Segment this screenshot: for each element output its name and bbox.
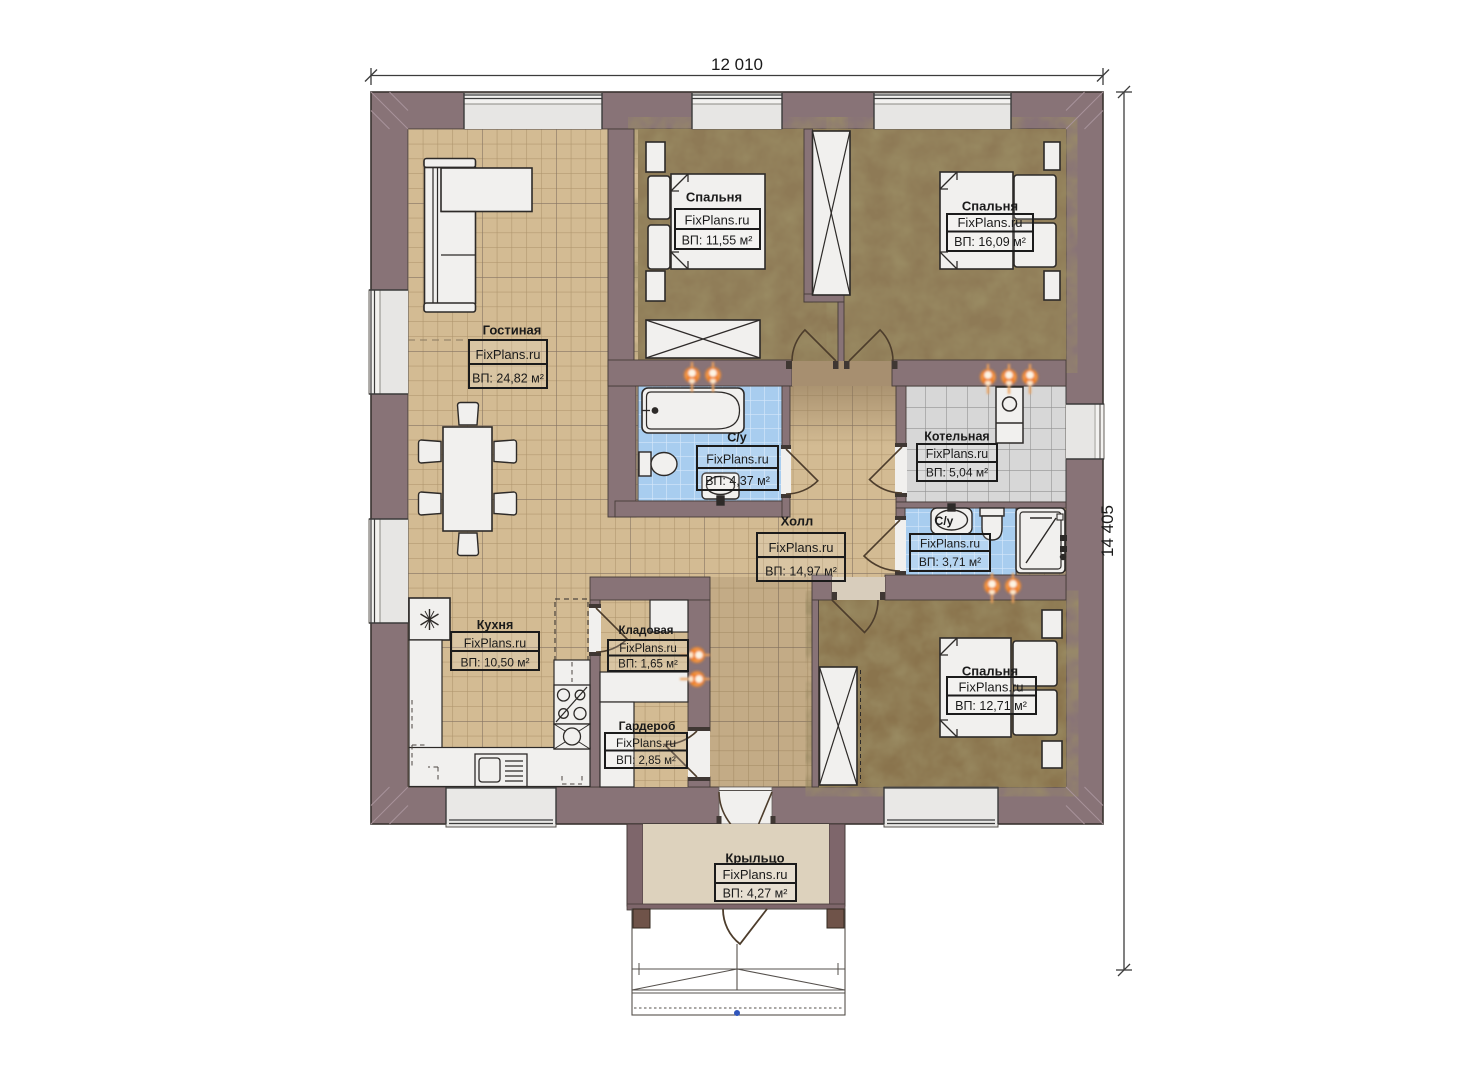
svg-text:FixPlans.ru: FixPlans.ru bbox=[920, 537, 980, 551]
svg-text:FixPlans.ru: FixPlans.ru bbox=[464, 637, 527, 651]
svg-text:ВП: 12,71 м²: ВП: 12,71 м² bbox=[955, 699, 1027, 713]
svg-text:ВП: 4,37 м²: ВП: 4,37 м² bbox=[705, 474, 770, 488]
svg-text:ВП: 2,85 м²: ВП: 2,85 м² bbox=[616, 755, 676, 767]
svg-text:С/у: С/у bbox=[935, 514, 954, 528]
svg-text:FixPlans.ru: FixPlans.ru bbox=[684, 213, 749, 228]
svg-text:Спальня: Спальня bbox=[686, 190, 742, 205]
svg-text:FixPlans.ru: FixPlans.ru bbox=[958, 680, 1023, 695]
svg-text:14 405: 14 405 bbox=[1098, 505, 1117, 557]
svg-text:FixPlans.ru: FixPlans.ru bbox=[475, 347, 540, 362]
svg-text:ВП: 24,82 м²: ВП: 24,82 м² bbox=[472, 372, 544, 386]
svg-text:ВП: 4,27 м²: ВП: 4,27 м² bbox=[723, 887, 788, 901]
svg-text:ВП: 1,65 м²: ВП: 1,65 м² bbox=[618, 659, 678, 671]
svg-text:FixPlans.ru: FixPlans.ru bbox=[706, 453, 769, 467]
svg-text:ВП: 5,04 м²: ВП: 5,04 м² bbox=[926, 466, 988, 480]
svg-text:С/у: С/у bbox=[727, 431, 747, 445]
svg-text:Кухня: Кухня bbox=[477, 618, 514, 632]
svg-text:Кладовая: Кладовая bbox=[618, 625, 673, 637]
svg-text:FixPlans.ru: FixPlans.ru bbox=[616, 736, 676, 750]
svg-text:ВП: 10,50 м²: ВП: 10,50 м² bbox=[461, 656, 530, 670]
svg-text:Гостиная: Гостиная bbox=[483, 323, 542, 338]
svg-text:Котельная: Котельная bbox=[924, 430, 989, 444]
svg-text:Гардероб: Гардероб bbox=[619, 719, 676, 733]
svg-text:FixPlans.ru: FixPlans.ru bbox=[619, 643, 677, 655]
svg-text:FixPlans.ru: FixPlans.ru bbox=[926, 447, 989, 461]
svg-text:Спальня: Спальня bbox=[962, 199, 1018, 214]
svg-text:FixPlans.ru: FixPlans.ru bbox=[722, 867, 787, 882]
svg-text:12 010: 12 010 bbox=[711, 55, 763, 74]
svg-text:Холл: Холл bbox=[781, 514, 814, 529]
svg-text:ВП: 16,09 м²: ВП: 16,09 м² bbox=[954, 235, 1026, 249]
svg-text:ВП: 14,97 м²: ВП: 14,97 м² bbox=[765, 565, 837, 579]
svg-text:FixPlans.ru: FixPlans.ru bbox=[957, 215, 1022, 230]
svg-text:ВП: 11,55 м²: ВП: 11,55 м² bbox=[682, 234, 753, 248]
svg-text:FixPlans.ru: FixPlans.ru bbox=[768, 540, 833, 555]
svg-text:ВП: 3,71 м²: ВП: 3,71 м² bbox=[919, 555, 981, 569]
